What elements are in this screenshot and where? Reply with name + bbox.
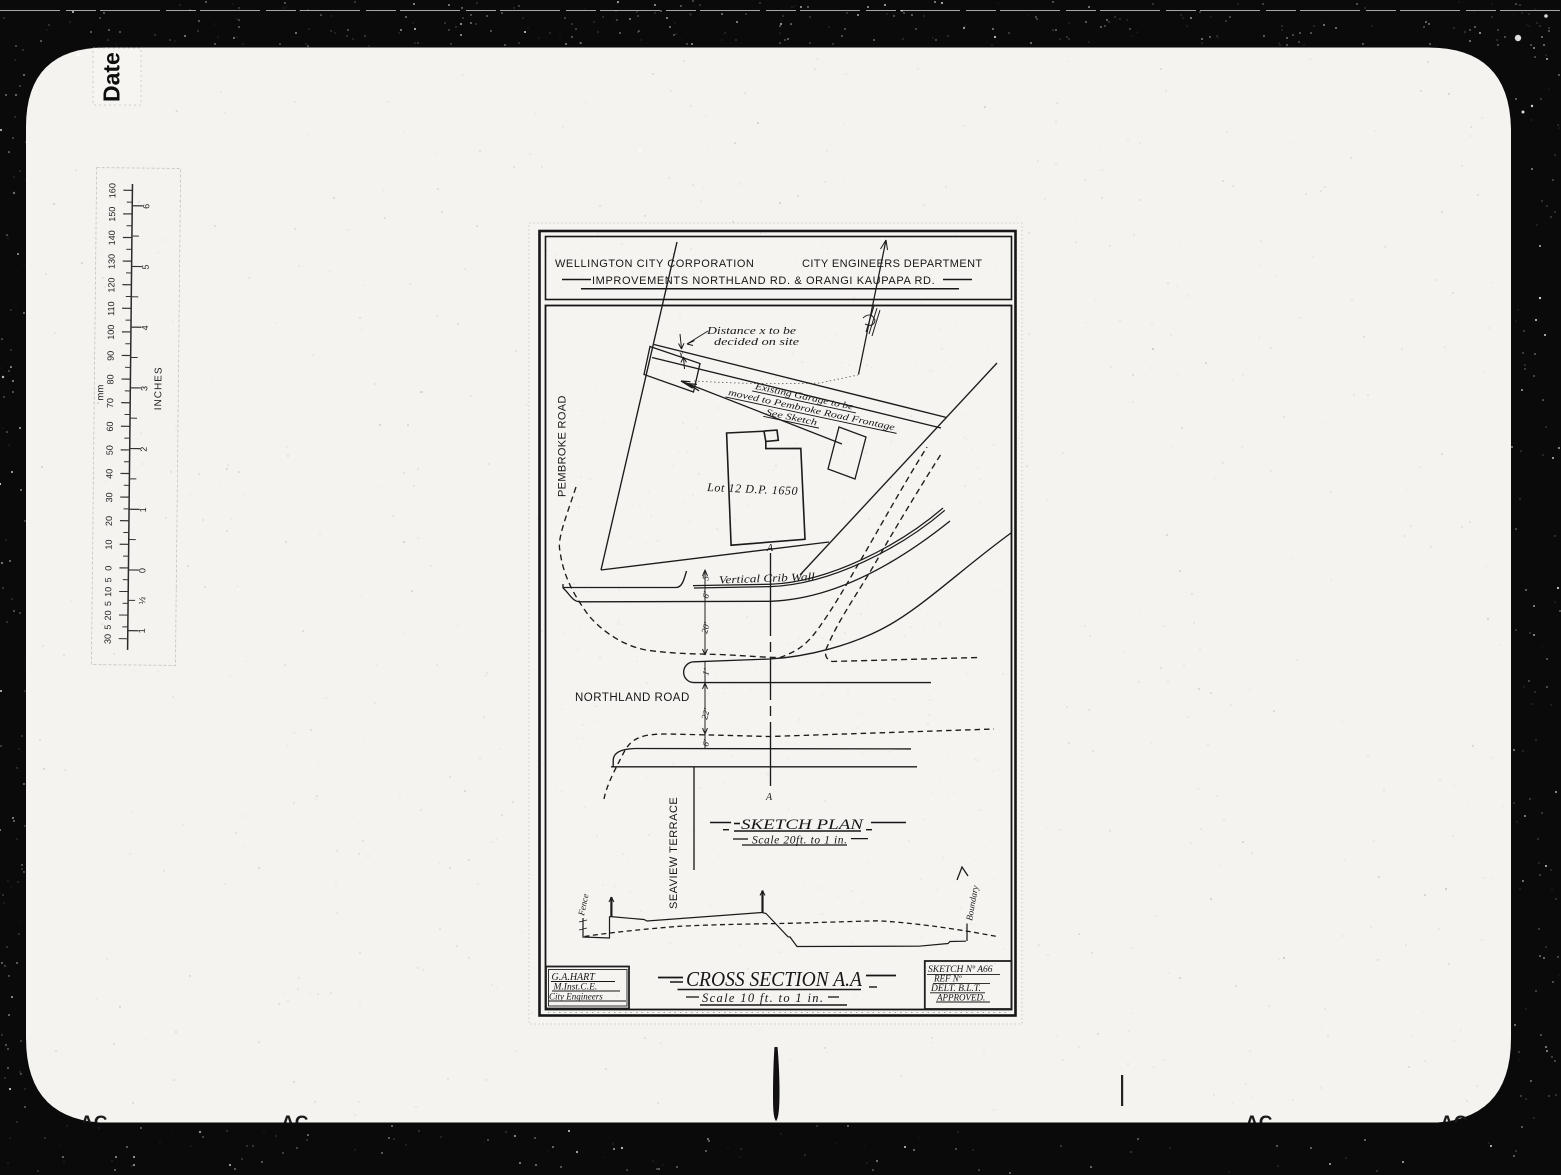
svg-text:130: 130 bbox=[107, 254, 117, 269]
svg-text:140: 140 bbox=[107, 230, 117, 245]
svg-text:½: ½ bbox=[137, 596, 147, 604]
svg-text:30: 30 bbox=[103, 634, 113, 644]
svg-text:IMPROVEMENTS NORTHLAND RD.: IMPROVEMENTS NORTHLAND RD. & ORANGI KAUP… bbox=[592, 275, 935, 287]
svg-text:80: 80 bbox=[105, 374, 115, 384]
svg-text:1: 1 bbox=[138, 507, 148, 512]
svg-text:5: 5 bbox=[103, 625, 113, 630]
svg-text:6: 6 bbox=[141, 204, 151, 209]
svg-text:INCHES: INCHES bbox=[153, 366, 164, 410]
svg-text:90: 90 bbox=[106, 351, 116, 361]
svg-text:SEAVIEW TERRACE: SEAVIEW TERRACE bbox=[668, 797, 680, 909]
svg-text:City Engineers: City Engineers bbox=[549, 992, 603, 1002]
svg-text:110: 110 bbox=[106, 301, 116, 315]
svg-text:5: 5 bbox=[103, 577, 113, 582]
svg-text:NORTHLAND ROAD: NORTHLAND ROAD bbox=[575, 692, 690, 704]
svg-text:20: 20 bbox=[104, 516, 114, 526]
svg-text:Distance x to be: Distance x to be bbox=[706, 326, 797, 337]
svg-text:100: 100 bbox=[106, 325, 116, 340]
svg-text:5: 5 bbox=[103, 601, 113, 606]
svg-text:40: 40 bbox=[104, 469, 114, 479]
svg-text:4: 4 bbox=[140, 325, 150, 330]
svg-text:CROSS SECTION A.A: CROSS SECTION A.A bbox=[686, 967, 862, 991]
svg-text:APPROVED.: APPROVED. bbox=[936, 993, 985, 1003]
svg-text:50: 50 bbox=[105, 445, 115, 455]
svg-text:3: 3 bbox=[139, 386, 149, 391]
svg-text:70: 70 bbox=[105, 398, 115, 408]
svg-text:Scale 10 ft. to 1 in.: Scale 10 ft. to 1 in. bbox=[702, 991, 823, 1005]
svg-text:CITY ENGINEERS DEPARTMENT: CITY ENGINEERS DEPARTMENT bbox=[802, 258, 983, 270]
svg-text:PEMBROKE ROAD: PEMBROKE ROAD bbox=[557, 395, 569, 497]
svg-text:A: A bbox=[765, 792, 773, 803]
svg-text:1: 1 bbox=[137, 628, 147, 633]
svg-text:2: 2 bbox=[139, 447, 149, 452]
svg-text:mm: mm bbox=[95, 385, 106, 401]
svg-text:5: 5 bbox=[141, 265, 151, 270]
svg-text:0: 0 bbox=[137, 568, 147, 573]
svg-text:150: 150 bbox=[107, 207, 117, 222]
svg-text:30: 30 bbox=[104, 492, 114, 502]
svg-text:60: 60 bbox=[105, 422, 115, 432]
svg-text:WELLINGTON CITY CORPORATION: WELLINGTON CITY CORPORATION bbox=[555, 258, 754, 270]
svg-text:Date: Date bbox=[99, 52, 125, 102]
svg-text:160: 160 bbox=[107, 183, 117, 198]
svg-text:20: 20 bbox=[103, 610, 113, 620]
svg-text:10: 10 bbox=[103, 587, 113, 597]
svg-text:0: 0 bbox=[103, 566, 113, 571]
svg-text:decided on site: decided on site bbox=[714, 337, 800, 348]
svg-text:120: 120 bbox=[106, 277, 116, 292]
svg-text:REF Nº: REF Nº bbox=[933, 974, 962, 984]
svg-text:10: 10 bbox=[104, 540, 114, 550]
